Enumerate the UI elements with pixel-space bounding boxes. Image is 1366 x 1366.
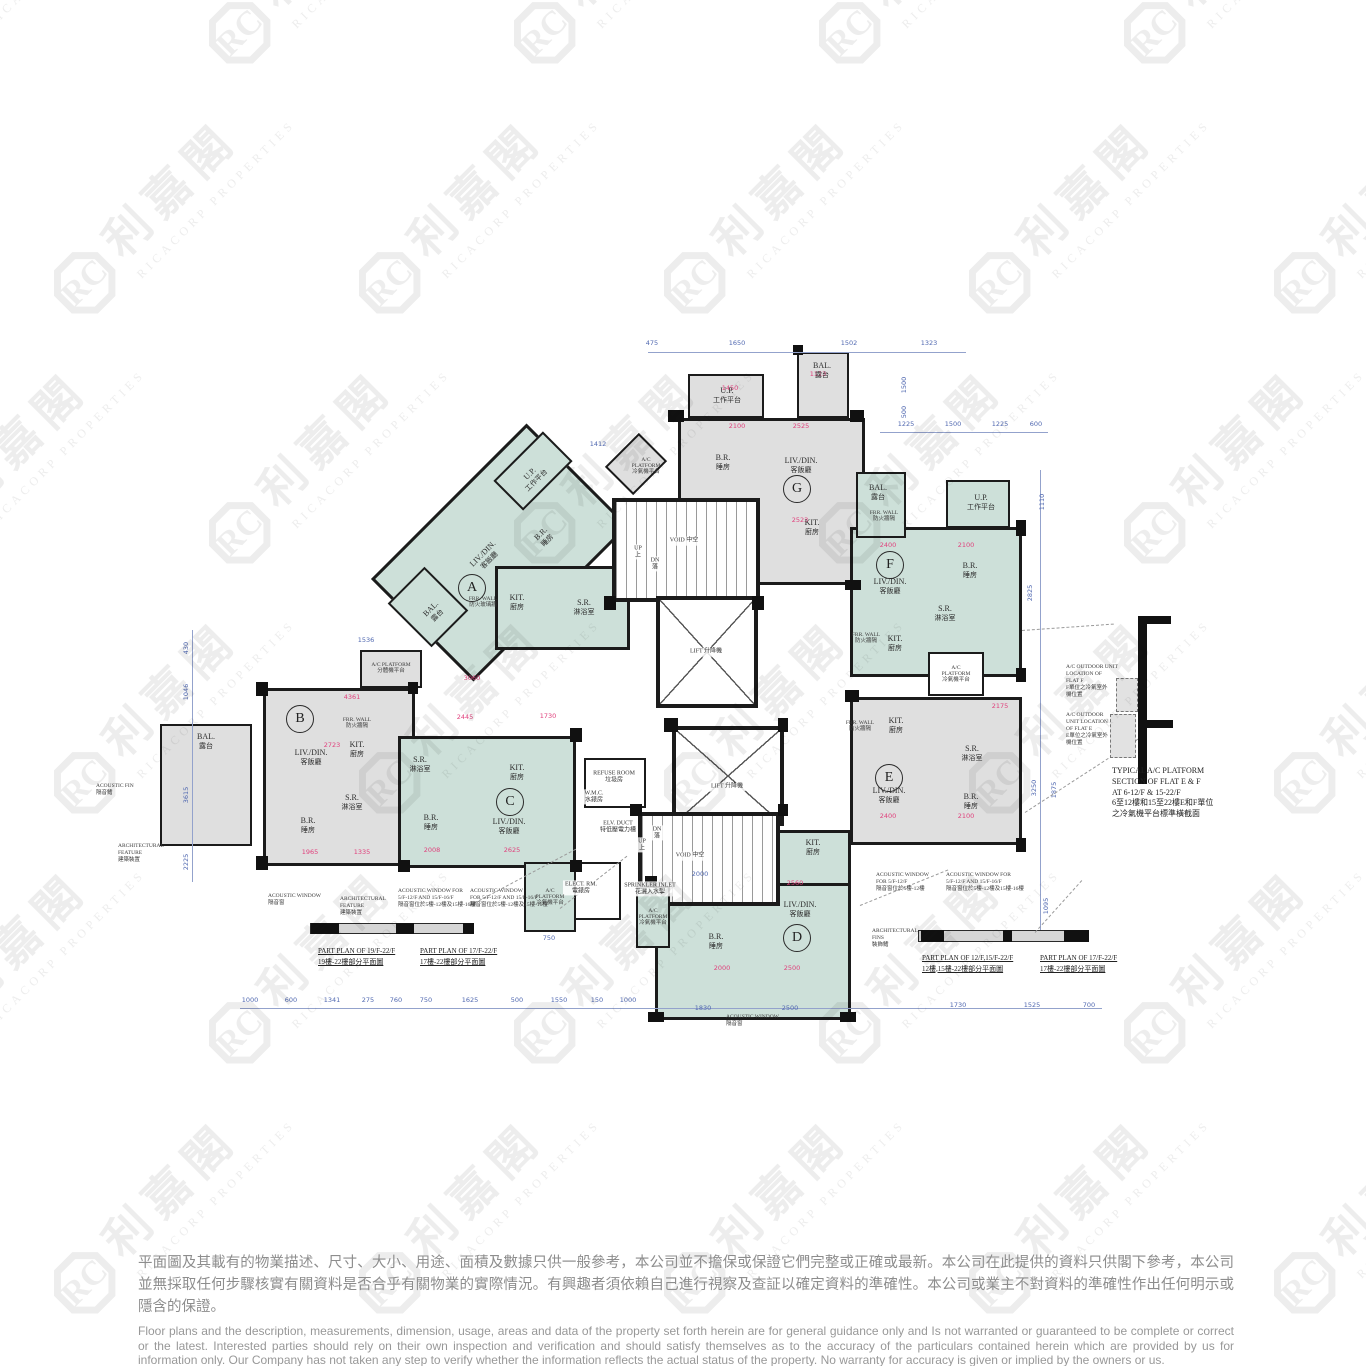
- part-plan-caption: PART PLAN OF 17/F-22/F17樓-22樓部分平面圖: [1040, 953, 1117, 974]
- room-label: S.R.淋浴室: [342, 793, 363, 811]
- annotation-note: ARCHITECTURALFEATURE建築裝置: [118, 843, 164, 864]
- dimension-blue: 1412: [590, 440, 607, 448]
- room-label: S.R.淋浴室: [962, 744, 983, 762]
- dimension-line: [648, 352, 966, 353]
- wall-pier: [256, 682, 268, 696]
- room-core-lift-lower: [672, 726, 784, 826]
- annotation-note: ACOUSTIC WINDOWFOR 5/F-12/F AND 15/F-16/…: [470, 888, 548, 909]
- dimension-pink: 2400: [880, 541, 897, 549]
- part-plan-strip-block: [1064, 930, 1089, 942]
- dimension-blue: 1225: [992, 420, 1009, 428]
- core-label: REFUSE ROOM垃圾房: [591, 769, 637, 784]
- flat-circle-g: G: [783, 475, 811, 503]
- dimension-pink: 2100: [958, 812, 975, 820]
- dimension-line: [240, 1008, 1102, 1009]
- annotation-note: ACOUSTIC WINDOW隔音窗: [268, 893, 321, 907]
- dimension-blue: 1830: [695, 1004, 712, 1012]
- wall-pier: [778, 804, 788, 816]
- wall-pier: [570, 728, 582, 742]
- room-label: KIT.廚房: [805, 518, 820, 536]
- flat-circle-f: F: [876, 551, 904, 579]
- dimension-blue: 1502: [841, 339, 858, 347]
- room-label: B.R.睡房: [301, 816, 316, 834]
- annotation-note: ACOUSTIC WINDOW FOR5/F-12/F AND 15/F-16/…: [946, 872, 1024, 893]
- section-wall-mid: [1147, 720, 1173, 728]
- dimension-blue: 1323: [921, 339, 938, 347]
- room-label: KIT.廚房: [888, 634, 903, 652]
- section-wall-vertical: [1138, 616, 1147, 784]
- wall-pier: [845, 580, 861, 590]
- dimension-pink: 2000: [714, 964, 731, 972]
- dimension-pink: 1335: [354, 848, 371, 856]
- tiny-label: A/CPLATFORM冷氣機平台: [632, 457, 661, 475]
- dimension-pink: 2400: [880, 812, 897, 820]
- wall-pier: [256, 856, 268, 870]
- part-plan-strip-block: [311, 923, 339, 934]
- dimension-pink: 2175: [992, 702, 1009, 710]
- dimension-blue: 500: [511, 996, 523, 1004]
- dimension-pink: 2500: [784, 964, 801, 972]
- annotation-note: ACOUSTIC WINDOW隔音窗: [726, 1014, 779, 1028]
- wall-pier: [845, 690, 859, 702]
- dimension-blue: 2825: [1026, 585, 1034, 602]
- floor-plan-drawing: ABCDEFGB.R.睡房LIV./DIN.客飯廳KIT.廚房U.P.工作平台B…: [0, 0, 1366, 1366]
- dimension-line: [880, 432, 1048, 433]
- wall-pier: [664, 718, 678, 732]
- dimension-pink: 4361: [344, 693, 361, 701]
- annotation-note: ACOUSTIC FIN隔音鰭: [96, 783, 134, 797]
- dimension-blue: 1525: [1024, 1001, 1041, 1009]
- core-label: UP上: [632, 544, 644, 559]
- core-label: ELECT. RM.電錶房: [563, 880, 599, 895]
- wall-pier: [408, 682, 418, 694]
- section-detail-caption: TYPICAL A/C PLATFORMSECTION OF FLAT E & …: [1112, 766, 1213, 820]
- room-label: BAL.露台: [869, 483, 887, 501]
- room-label: U.P.工作平台: [713, 386, 741, 404]
- core-label: W.M.C.水錶房: [583, 789, 606, 804]
- part-plan-caption: PART PLAN OF 17/F-22/F17樓-22樓部分平面圖: [420, 946, 497, 967]
- dimension-blue: 2000: [692, 870, 709, 878]
- room-label: B.R.睡房: [709, 932, 724, 950]
- dimension-pink: 2445: [457, 713, 474, 721]
- ac-outdoor-unit-note: A/C OUTDOORUNIT LOCATIONOF FLAT EE單位之冷氣室…: [1066, 712, 1108, 746]
- room-label: KIT.廚房: [350, 740, 365, 758]
- dimension-blue: 600: [1030, 420, 1042, 428]
- dimension-blue: 600: [285, 996, 297, 1004]
- room-label: LIV./DIN.客飯廳: [784, 900, 817, 918]
- wall-pier: [570, 860, 582, 872]
- core-label: ELV. DUCT特低壓電力槽: [598, 819, 638, 834]
- room-label: LIV./DIN.客飯廳: [295, 748, 328, 766]
- dimension-line: [192, 630, 193, 882]
- floor-plan-page: ABCDEFGB.R.睡房LIV./DIN.客飯廳KIT.廚房U.P.工作平台B…: [0, 0, 1366, 1366]
- wall-pier: [752, 596, 764, 610]
- flat-circle-d: D: [783, 924, 811, 952]
- dimension-blue: 1650: [729, 339, 746, 347]
- dimension-blue: 150: [591, 996, 603, 1004]
- room-label: BAL.露台: [813, 361, 831, 379]
- dimension-blue: 500: [900, 406, 908, 418]
- dimension-blue: 1000: [242, 996, 259, 1004]
- dimension-blue: 760: [390, 996, 402, 1004]
- dimension-pink: 2525: [793, 422, 810, 430]
- dimension-pink: 2100: [958, 541, 975, 549]
- wall-pier: [850, 410, 864, 422]
- room-label: LIV./DIN.客飯廳: [493, 817, 526, 835]
- room-label: U.P.工作平台: [967, 493, 995, 511]
- core-label: DN落: [649, 556, 662, 571]
- annotation-note: ACOUSTIC WINDOWFOR 5/F-12/F隔音窗位於5樓-12樓: [876, 872, 929, 893]
- ac-outdoor-unit-note: A/C OUTDOOR UNITLOCATION OFFLAT FF單位之冷氣室…: [1066, 664, 1118, 698]
- room-label: B.R.睡房: [963, 561, 978, 579]
- dimension-blue: 3615: [182, 787, 190, 804]
- core-label: VOID 中空: [668, 537, 701, 546]
- room-label: KIT.廚房: [806, 838, 821, 856]
- room-label: LIV./DIN.客飯廳: [873, 786, 906, 804]
- room-label: B.R.睡房: [424, 813, 439, 831]
- dimension-blue: 1550: [551, 996, 568, 1004]
- part-plan-strip: [918, 930, 1088, 942]
- dimension-pink: 2560: [787, 879, 804, 887]
- dimension-pink: 3060: [464, 674, 481, 682]
- dimension-blue: 750: [543, 934, 555, 942]
- core-label: VOID 中空: [674, 852, 707, 861]
- wall-pier: [648, 1012, 664, 1022]
- dimension-blue: 1110: [1038, 494, 1046, 511]
- wall-pier: [793, 345, 803, 355]
- wall-pier: [1016, 838, 1026, 852]
- dimension-blue: 1500: [900, 377, 908, 394]
- dimension-blue: 1730: [950, 1001, 967, 1009]
- flat-circle-c: C: [496, 788, 524, 816]
- tiny-label: FRR. WALL防火牆隔: [852, 632, 880, 644]
- tiny-label: A/CPLATFORM冷氣機平台: [639, 908, 668, 926]
- dimension-blue: 475: [646, 339, 658, 347]
- room-label: S.R.淋浴室: [410, 755, 431, 773]
- part-plan-caption: PART PLAN OF 12/F,15/F-22/F12樓,15樓-22樓部分…: [922, 953, 1013, 974]
- section-wall-top: [1147, 616, 1171, 624]
- disclaimer-english: Floor plans and the description, measure…: [138, 1324, 1234, 1366]
- part-plan-strip-block: [1003, 930, 1012, 942]
- annotation-note: ARCHITECTURALFEATURE建築裝置: [340, 896, 386, 917]
- tiny-label: A/CPLATFORM冷氣機平台: [942, 665, 971, 683]
- ac-outdoor-unit-lower: [1110, 714, 1136, 758]
- room-label: KIT.廚房: [889, 716, 904, 734]
- room-label: LIV./DIN.客飯廳: [874, 577, 907, 595]
- wall-pier: [604, 596, 616, 610]
- disclaimer-block: 平面圖及其載有的物業描述、尺寸、大小、用途、面積及數據只供一般參考，本公司並不擔…: [138, 1252, 1234, 1366]
- dimension-blue: 1536: [358, 636, 375, 644]
- wall-pier: [1016, 668, 1026, 682]
- dimension-blue: 1500: [945, 420, 962, 428]
- tiny-label: FRR. WALL防火玻璃牆: [469, 596, 497, 608]
- ac-outdoor-unit-upper: [1116, 678, 1138, 712]
- core-label: UP上: [636, 837, 648, 852]
- room-label: KIT.廚房: [510, 763, 525, 781]
- dimension-blue: 2225: [182, 854, 190, 871]
- room-label: LIV./DIN.客飯廳: [785, 456, 818, 474]
- dimension-pink: 1965: [302, 848, 319, 856]
- dimension-blue: 1046: [182, 684, 190, 701]
- dimension-pink: 2008: [424, 846, 441, 854]
- wall-pier: [630, 804, 642, 816]
- dimension-blue: 2500: [782, 1004, 799, 1012]
- dimension-blue: 1341: [324, 996, 341, 1004]
- dimension-blue: 1000: [620, 996, 637, 1004]
- leader-dashed-line: [1022, 624, 1114, 631]
- part-plan-strip-block: [921, 930, 944, 942]
- dimension-blue: 430: [182, 642, 190, 654]
- dimension-pink: 1730: [540, 712, 557, 720]
- dimension-blue: 275: [362, 996, 374, 1004]
- annotation-note: ARCHITECTURALFINS裝飾鰭: [872, 928, 918, 949]
- room-label: BAL.露台: [197, 732, 215, 750]
- wall-pier: [398, 860, 410, 872]
- tiny-label: FRR. WALL防火牆隔: [343, 717, 371, 729]
- core-label: SPRINKLER INLET花灑入水掣: [622, 881, 678, 896]
- dimension-pink: 2100: [729, 422, 746, 430]
- room-label: B.R.睡房: [716, 453, 731, 471]
- part-plan-caption: PART PLAN OF 19/F-22/F19樓-22樓部分平面圖: [318, 946, 395, 967]
- dimension-line: [1040, 470, 1041, 930]
- dimension-blue: 3250: [1030, 780, 1038, 797]
- dimension-blue: 1095: [1042, 898, 1050, 915]
- dimension-blue: 700: [1083, 1001, 1095, 1009]
- room-label: S.R.淋浴室: [574, 598, 595, 616]
- annotation-note: ACOUSTIC WINDOW FOR5/F-12/F AND 15/F-16/…: [398, 888, 476, 909]
- room-label: B.R.睡房: [964, 792, 979, 810]
- part-plan-strip: [310, 923, 473, 934]
- room-label: KIT.廚房: [510, 593, 525, 611]
- core-label: DN落: [651, 825, 664, 840]
- wall-pier: [840, 1012, 856, 1022]
- flat-circle-b: B: [286, 705, 314, 733]
- dimension-blue: 1225: [898, 420, 915, 428]
- part-plan-strip-block: [396, 923, 414, 934]
- room-label: S.R.淋浴室: [935, 604, 956, 622]
- core-label: LIFT 升降機: [688, 648, 724, 657]
- tiny-label: A/C PLATFORM分體機平台: [371, 662, 410, 674]
- tiny-label: FRR. WALL防火牆隔: [846, 720, 874, 732]
- wall-pier: [1016, 520, 1026, 536]
- wall-pier: [668, 410, 684, 422]
- dimension-pink: 2625: [504, 846, 521, 854]
- core-label: LIFT 升降機: [709, 783, 745, 792]
- tiny-label: FRR. WALL防火牆隔: [870, 510, 898, 522]
- dimension-blue: 750: [420, 996, 432, 1004]
- part-plan-strip-block: [463, 923, 474, 934]
- disclaimer-chinese: 平面圖及其載有的物業描述、尺寸、大小、用途、面積及數據只供一般參考，本公司並不擔…: [138, 1252, 1234, 1318]
- dimension-blue: 1625: [462, 996, 479, 1004]
- wall-pier: [778, 718, 788, 732]
